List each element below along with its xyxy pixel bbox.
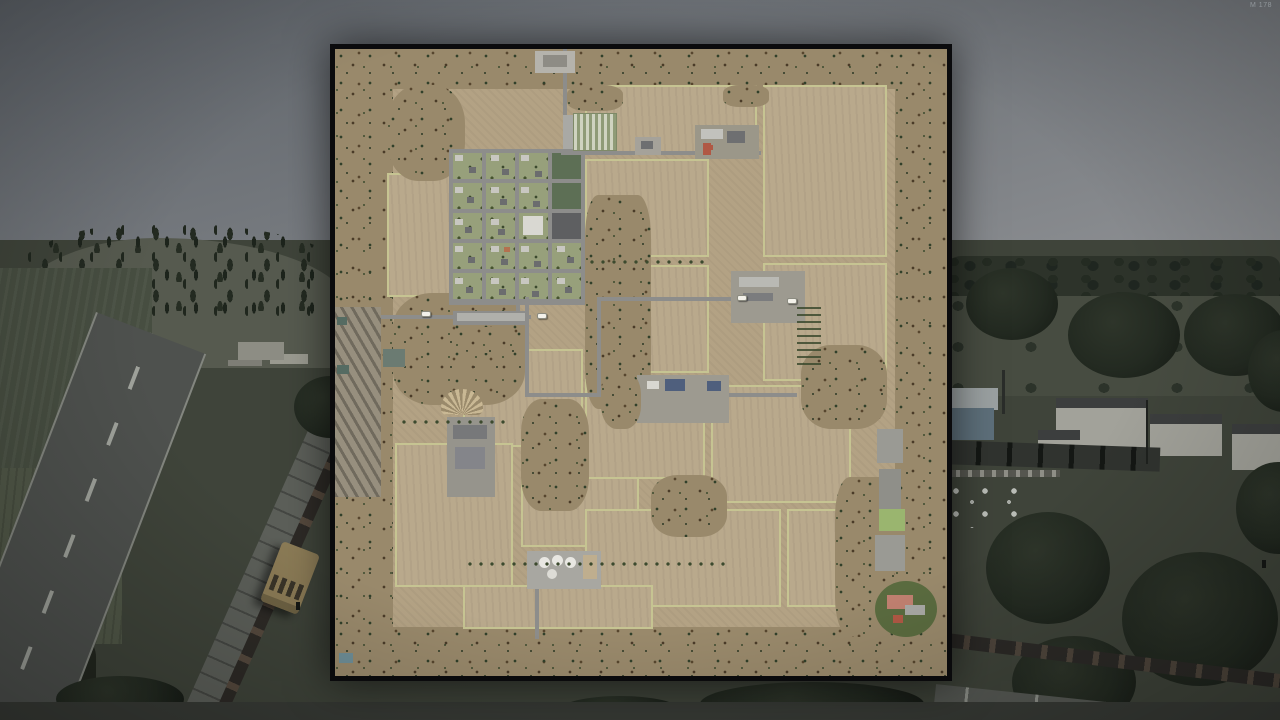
map-building	[565, 287, 572, 293]
map-structure	[665, 379, 685, 391]
map-structure	[875, 535, 905, 571]
map-marker-icon	[537, 313, 547, 319]
map-building	[466, 287, 473, 293]
map-town-block	[453, 183, 482, 209]
map-town-block	[552, 213, 581, 239]
pedestrian	[296, 602, 300, 610]
map-building	[455, 246, 463, 252]
map-building	[521, 155, 529, 161]
map-building	[469, 167, 476, 173]
map-field	[387, 173, 457, 297]
map-town-block	[486, 213, 515, 239]
map-tree-row	[587, 259, 707, 265]
map-structure	[727, 131, 745, 143]
map-building	[557, 246, 565, 252]
map-orchard	[797, 307, 821, 365]
map-tree-cluster	[567, 85, 623, 111]
map-building	[498, 229, 505, 235]
map-building	[567, 257, 574, 263]
map-town-block	[453, 273, 482, 299]
map-structure	[647, 381, 659, 389]
map-building	[521, 246, 529, 252]
map-building-accent	[504, 247, 510, 252]
map-building	[491, 246, 499, 252]
map-building	[534, 261, 541, 267]
map-building	[521, 278, 529, 284]
map-silo	[547, 569, 557, 579]
map-structure	[701, 129, 723, 139]
map-structure	[707, 381, 721, 391]
map-town-block	[453, 153, 482, 179]
map-town-block	[453, 213, 482, 239]
map-town-block	[486, 153, 515, 179]
map-town-block	[519, 273, 548, 299]
map-building	[455, 278, 463, 284]
map-structure	[453, 425, 487, 439]
map-structure	[457, 313, 525, 321]
map-town-block	[486, 273, 515, 299]
map-building	[465, 227, 472, 233]
map-building	[500, 199, 507, 205]
map-town-block	[453, 243, 482, 269]
map-building	[557, 278, 565, 284]
street-lamp	[1146, 400, 1148, 464]
map-building	[467, 197, 474, 203]
map-building	[532, 291, 539, 297]
map-building	[499, 289, 506, 295]
sign-pole	[1002, 370, 1005, 414]
map-building	[533, 201, 540, 207]
map-building	[491, 155, 499, 161]
house	[1150, 414, 1222, 456]
map-road	[597, 297, 737, 301]
map-structure	[893, 615, 903, 623]
bus-windows	[269, 574, 305, 600]
map-building	[491, 219, 499, 225]
map-structure	[339, 653, 353, 663]
map-building	[468, 257, 475, 263]
map-building	[521, 187, 529, 193]
map-surface[interactable]	[335, 49, 947, 676]
map-structure	[877, 429, 903, 463]
map-structure	[641, 141, 653, 149]
map-building	[502, 169, 509, 175]
map-structure	[739, 277, 779, 287]
map-structure	[743, 293, 773, 301]
pedestrian	[1262, 560, 1266, 568]
map-field	[763, 85, 887, 257]
map-road	[597, 299, 601, 397]
map-marker-icon	[421, 311, 431, 317]
map-town-block	[552, 153, 581, 179]
map-town-block	[552, 183, 581, 209]
map-structure	[705, 145, 713, 150]
map-greenhouses	[573, 113, 617, 151]
map-structure	[337, 365, 349, 374]
bottom-road-strip	[0, 702, 1280, 720]
map-road	[535, 589, 539, 639]
map-tree-cluster	[601, 371, 641, 429]
map-marker-icon	[787, 298, 797, 304]
map-building	[455, 187, 463, 193]
map-town-block	[552, 243, 581, 269]
map-town-block	[486, 243, 515, 269]
tree	[1068, 292, 1180, 378]
map-tree-cluster	[651, 475, 727, 537]
map-tree-cluster	[723, 85, 769, 107]
map-building	[535, 171, 542, 177]
map-town-block	[486, 183, 515, 209]
map-structure	[563, 115, 573, 149]
map-structure	[879, 509, 905, 531]
map-structure	[455, 447, 485, 469]
map-scrub-band	[335, 49, 947, 89]
map-tree-cluster	[521, 399, 589, 511]
tree	[986, 512, 1110, 624]
map-quarry	[335, 307, 381, 497]
gas-station-canopy	[946, 388, 998, 410]
map-town-big-building	[523, 216, 543, 235]
game-screen: M 178	[0, 0, 1280, 720]
map-town-block	[519, 213, 548, 239]
map-building	[455, 155, 463, 161]
map-town-block	[519, 243, 548, 269]
map-structure	[337, 317, 347, 325]
map-field	[463, 585, 653, 629]
farm-buildings-left	[238, 342, 284, 360]
map-structure	[879, 469, 901, 513]
map-building	[501, 259, 508, 265]
map-building	[491, 278, 499, 284]
map-building	[455, 219, 463, 225]
map-tree-row	[399, 419, 509, 426]
map-town-block	[552, 273, 581, 299]
map-overlay[interactable]	[330, 44, 952, 681]
map-tree-cluster	[455, 327, 527, 353]
tree	[966, 268, 1058, 340]
map-marker-icon	[737, 295, 747, 301]
map-town-block	[519, 153, 548, 179]
map-structure	[905, 605, 925, 615]
version-watermark: M 178	[1250, 2, 1272, 9]
map-tree-row	[465, 561, 725, 568]
map-town-block	[519, 183, 548, 209]
map-structure	[383, 349, 405, 367]
white-fence	[944, 470, 1060, 477]
map-building	[491, 187, 499, 193]
map-structure	[543, 55, 567, 67]
